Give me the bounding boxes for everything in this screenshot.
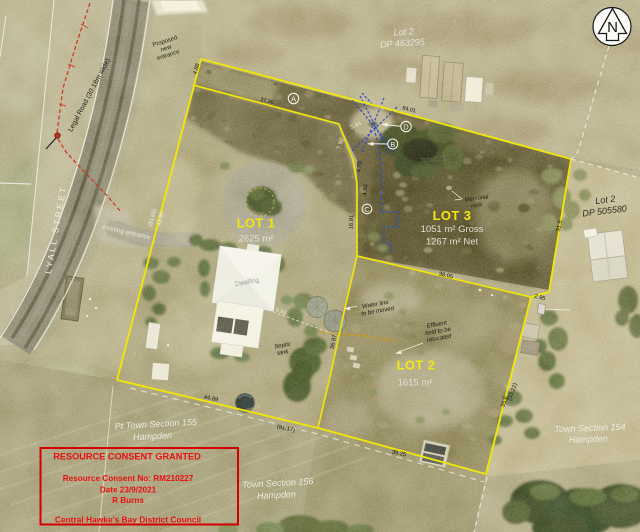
svg-text:D: D (403, 123, 409, 132)
svg-text:LOT 2: LOT 2 (397, 358, 436, 373)
svg-text:2625 m²: 2625 m² (239, 234, 274, 245)
svg-text:A: A (291, 95, 296, 104)
svg-text:Hampden: Hampden (569, 433, 608, 444)
svg-text:1615 m²: 1615 m² (398, 378, 433, 389)
svg-text:4.60: 4.60 (363, 184, 370, 196)
svg-text:Central Hawke's Bay District C: Central Hawke's Bay District Council (55, 515, 201, 525)
svg-text:N: N (607, 19, 618, 36)
svg-text:Lot 2: Lot 2 (393, 26, 414, 37)
svg-text:C: C (364, 205, 370, 214)
svg-text:B: B (390, 140, 395, 149)
svg-text:LOT 1: LOT 1 (237, 216, 276, 231)
svg-text:Hampden: Hampden (257, 489, 297, 501)
svg-text:Date 23/9/2021: Date 23/9/2021 (100, 486, 157, 495)
svg-text:LOT 3: LOT 3 (433, 208, 472, 223)
svg-text:R Burns: R Burns (112, 496, 144, 505)
svg-text:Resource Consent No: RM210227: Resource Consent No: RM210227 (63, 474, 194, 483)
svg-text:RESOURCE CONSENT GRANTED: RESOURCE CONSENT GRANTED (53, 452, 201, 462)
svg-text:1267 m² Net: 1267 m² Net (426, 237, 479, 248)
svg-text:16.91: 16.91 (349, 215, 356, 230)
svg-text:1051 m² Gross: 1051 m² Gross (421, 224, 484, 235)
svg-text:Hampden: Hampden (133, 430, 173, 442)
